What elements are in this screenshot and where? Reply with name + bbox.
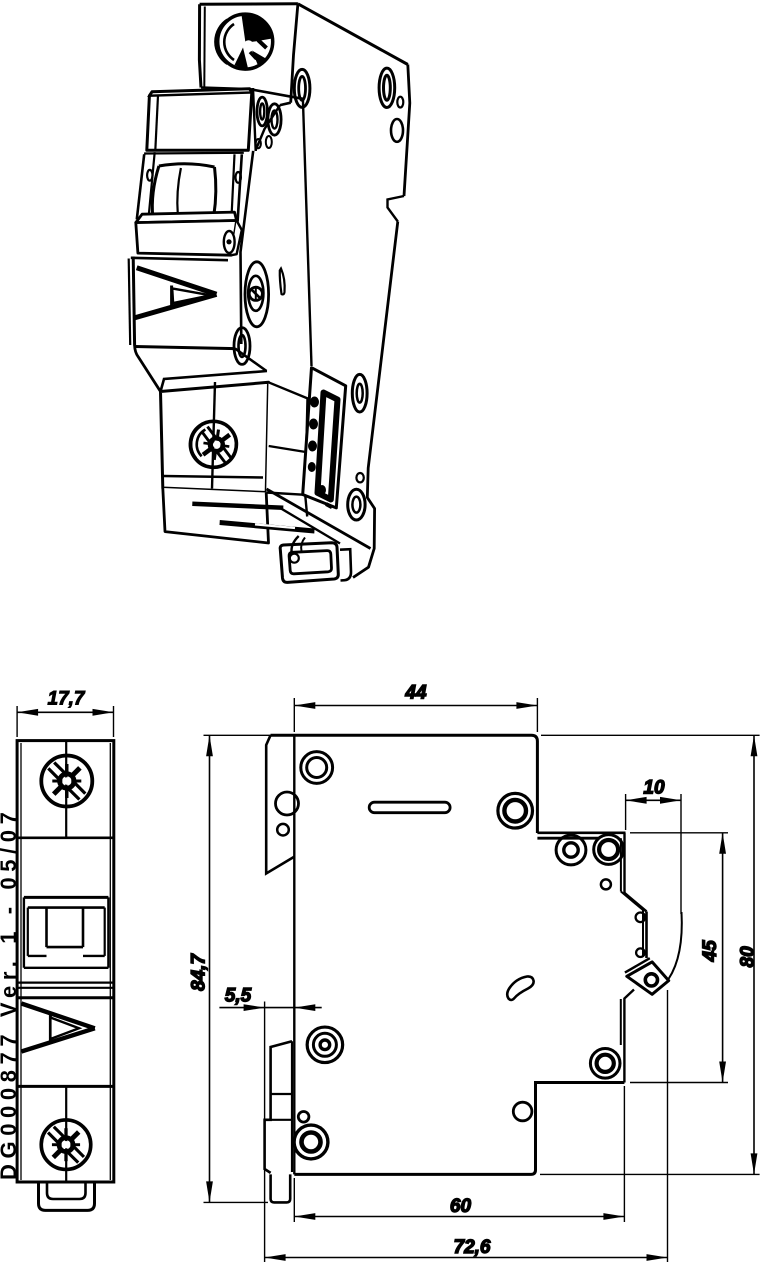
svg-text:72,6: 72,6 [454, 1237, 491, 1258]
svg-text:80: 80 [738, 946, 759, 968]
svg-text:10: 10 [643, 778, 665, 799]
svg-text:45: 45 [700, 940, 721, 963]
svg-text:60: 60 [450, 1196, 472, 1217]
svg-text:5,5: 5,5 [225, 986, 252, 1007]
svg-text:44: 44 [404, 683, 427, 704]
svg-text:DG000877 Ver. 1 - 05/07: DG000877 Ver. 1 - 05/07 [0, 807, 21, 1180]
svg-text:84,7: 84,7 [189, 953, 210, 991]
svg-text:17,7: 17,7 [48, 689, 86, 710]
